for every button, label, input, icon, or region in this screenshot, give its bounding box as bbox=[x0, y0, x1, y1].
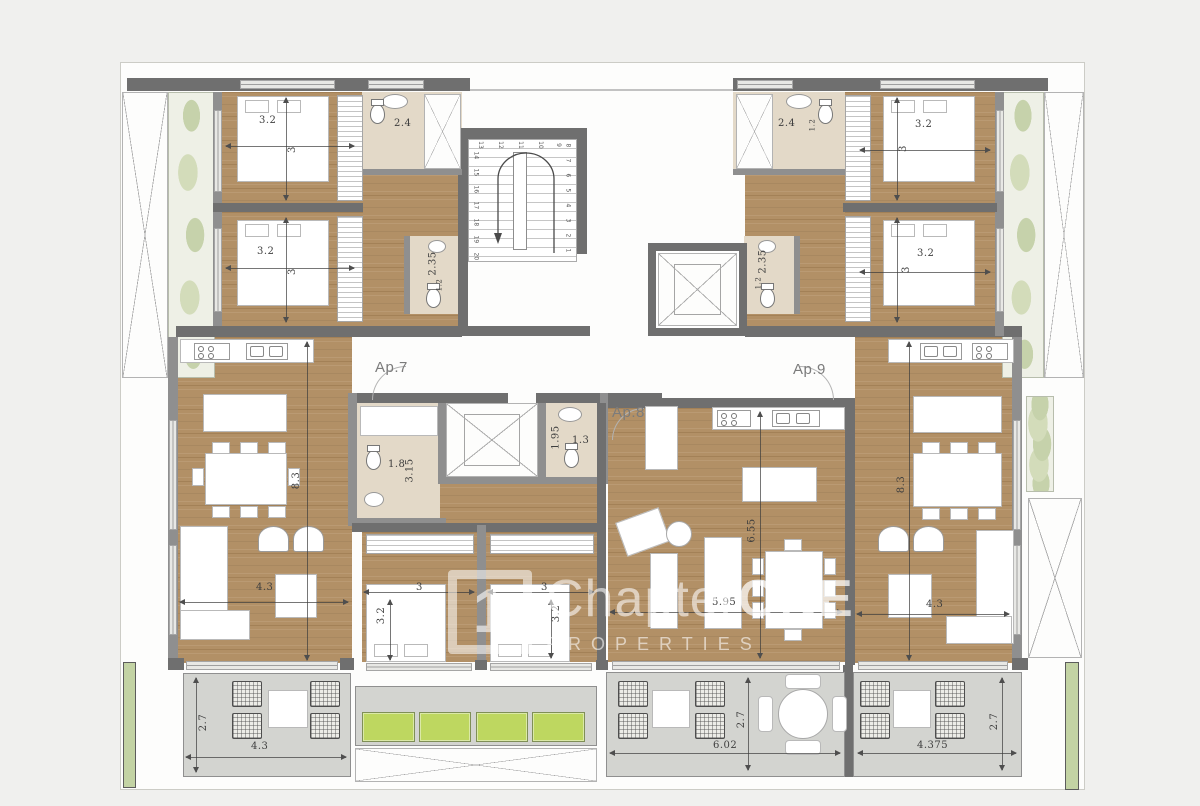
dim-label: 3.15 bbox=[405, 458, 416, 482]
sink-kitchen-ap9 bbox=[920, 343, 962, 360]
dim-label: 2.4 bbox=[394, 118, 411, 129]
dim-label: 1.3 bbox=[572, 435, 589, 446]
closet-tr1 bbox=[845, 95, 871, 201]
dining-chair bbox=[824, 580, 836, 597]
sink-bath-ap8 bbox=[558, 407, 582, 422]
pillow bbox=[277, 224, 301, 237]
dining-chair bbox=[978, 442, 996, 454]
lightwell-left bbox=[122, 92, 168, 378]
dining-table-ap8 bbox=[765, 551, 823, 629]
wicker-chair bbox=[860, 713, 890, 739]
dining-chair bbox=[950, 442, 968, 454]
terrace-table-left bbox=[268, 690, 308, 728]
dim-label: 1.8 bbox=[388, 459, 405, 470]
dim-label: 8.3 bbox=[291, 472, 302, 489]
terrace-table-center bbox=[652, 690, 690, 728]
dim-line bbox=[180, 602, 348, 603]
wall-between-tl-bedrooms bbox=[213, 203, 363, 212]
dim-label: 4.3 bbox=[256, 582, 273, 593]
sink-bath-ap7 bbox=[364, 492, 384, 507]
dim-label: 3 bbox=[287, 146, 298, 153]
dining-chair bbox=[784, 539, 802, 551]
stove-ap8 bbox=[717, 410, 751, 427]
planter-box bbox=[476, 712, 528, 742]
window-bed-tl1 bbox=[214, 110, 222, 192]
dim-label: 3.2 bbox=[917, 248, 934, 259]
lightwell-bottom-center bbox=[355, 748, 597, 782]
elevator-inner bbox=[674, 264, 721, 315]
dining-chair bbox=[824, 558, 836, 575]
wall-ap8-ap9 bbox=[845, 398, 855, 665]
window-bath-tr bbox=[737, 80, 793, 89]
coffee-table-ap9 bbox=[888, 574, 932, 618]
dim-label: 3.2 bbox=[259, 115, 276, 126]
dim-label: 2.7 bbox=[736, 711, 747, 728]
dim-line bbox=[909, 342, 910, 660]
dim-label: 1.2 bbox=[435, 279, 443, 292]
dining-chair bbox=[752, 602, 764, 619]
dining-chair bbox=[268, 442, 286, 454]
dim-label: 3.2 bbox=[551, 605, 562, 622]
pantry-ap8 bbox=[645, 406, 678, 470]
dining-chair bbox=[240, 506, 258, 518]
wall-bath-tl-south bbox=[362, 169, 462, 175]
window-ap8-south bbox=[612, 661, 840, 670]
wall-corner-3 bbox=[1012, 658, 1028, 670]
wall-corner-1 bbox=[168, 658, 184, 670]
dim-label: 3.2 bbox=[376, 607, 387, 624]
dim-label: 3 bbox=[541, 582, 548, 593]
stove-ap7 bbox=[194, 343, 230, 360]
wall-stair-east bbox=[577, 139, 587, 254]
window-tr1 bbox=[880, 80, 975, 89]
toilet-wc-tr bbox=[760, 288, 775, 308]
dining-chair bbox=[922, 442, 940, 454]
window-ap9-east1 bbox=[1013, 420, 1021, 530]
armchair-ap7 bbox=[258, 526, 289, 552]
wicker-chair bbox=[310, 681, 340, 707]
round-table-chair bbox=[832, 696, 847, 732]
window-ap7-south bbox=[186, 661, 338, 670]
apartment-label-ap8: Ap.8 bbox=[612, 404, 645, 421]
stair-direction-arrow bbox=[468, 139, 577, 262]
wicker-chair bbox=[232, 713, 262, 739]
coffee-table-ap7 bbox=[275, 574, 317, 618]
kitchen-island-ap8 bbox=[742, 467, 817, 502]
dim-label: 4.3 bbox=[926, 599, 943, 610]
wall-wc-tl-west bbox=[404, 236, 410, 314]
planter-box bbox=[419, 712, 471, 742]
stove-ap9 bbox=[972, 343, 1008, 360]
closet-tr2 bbox=[845, 216, 871, 322]
dim-line bbox=[610, 612, 842, 613]
wicker-chair bbox=[310, 713, 340, 739]
wall-corner-4 bbox=[475, 660, 487, 670]
wicker-chair bbox=[232, 681, 262, 707]
tv-bench-ap8 bbox=[650, 553, 678, 629]
pillow bbox=[245, 100, 269, 113]
terrace-table-right bbox=[893, 690, 931, 728]
pillow bbox=[923, 100, 947, 113]
sink-kitchen-ap7 bbox=[246, 343, 288, 360]
pillow bbox=[498, 644, 522, 657]
wicker-chair bbox=[935, 713, 965, 739]
dim-line bbox=[897, 218, 898, 322]
service-shaft-inner bbox=[464, 414, 520, 466]
wicker-chair bbox=[860, 681, 890, 707]
dim-label: 2.7 bbox=[198, 714, 209, 731]
wall-stair-north bbox=[455, 128, 587, 139]
planter-box bbox=[532, 712, 585, 742]
sofa-ap8 bbox=[704, 537, 742, 629]
window-beda-south bbox=[366, 663, 472, 671]
lounge-ap9 bbox=[946, 616, 1012, 644]
window-bed-tr1 bbox=[996, 110, 1004, 192]
wall-corner-5 bbox=[596, 660, 608, 670]
dim-line bbox=[307, 342, 308, 660]
toilet-bath-tr bbox=[818, 104, 833, 124]
stair-numbers-left: 14151617181920 bbox=[472, 152, 480, 260]
window-bath-tl bbox=[368, 80, 424, 89]
dim-line bbox=[760, 412, 761, 658]
pillow bbox=[404, 644, 428, 657]
wall-between-tr-bedrooms bbox=[843, 203, 997, 212]
dining-chair bbox=[824, 602, 836, 619]
dim-label: 2.35 bbox=[758, 249, 769, 273]
window-ap9-east2 bbox=[1013, 545, 1021, 635]
dining-chair bbox=[192, 468, 204, 486]
dim-line bbox=[860, 272, 990, 273]
dim-label: 3.2 bbox=[257, 246, 274, 257]
dining-chair bbox=[212, 506, 230, 518]
window-bed-tl2 bbox=[214, 228, 222, 312]
ottoman-ap8 bbox=[666, 521, 692, 547]
shower-tl bbox=[424, 94, 461, 169]
round-table-chair bbox=[785, 674, 821, 689]
dim-label: 1.95 bbox=[551, 425, 562, 449]
wicker-chair bbox=[618, 681, 648, 707]
pillow bbox=[923, 224, 947, 237]
pillow bbox=[891, 224, 915, 237]
planter-box bbox=[362, 712, 415, 742]
apartment-label-ap9: Ap.9 bbox=[793, 361, 826, 378]
wall-shaft-east bbox=[538, 403, 546, 484]
wall-wc-tr-east bbox=[794, 236, 800, 314]
armchair-ap9 bbox=[878, 526, 909, 552]
dim-line bbox=[610, 753, 840, 754]
sink-kitchen-ap8 bbox=[772, 410, 820, 427]
window-bed-tr2 bbox=[996, 228, 1004, 312]
dining-chair bbox=[950, 508, 968, 520]
shower-tr bbox=[736, 94, 773, 169]
wall-corner-2 bbox=[340, 658, 354, 670]
closet-bedroom-b bbox=[490, 534, 594, 554]
kitchen-island-ap9 bbox=[913, 396, 1002, 433]
stair-numbers-top: 910111213 bbox=[476, 141, 560, 149]
pillow bbox=[245, 224, 269, 237]
dim-line bbox=[186, 757, 346, 758]
dim-label: 3 bbox=[287, 268, 298, 275]
pillow bbox=[374, 644, 398, 657]
wall-ap7-bath-west bbox=[348, 393, 357, 525]
dim-label: 6.55 bbox=[747, 518, 758, 542]
round-table bbox=[778, 689, 828, 739]
toilet-bath-ap7 bbox=[366, 450, 381, 470]
dim-label: 1.2 bbox=[754, 277, 762, 290]
sink-bath-tl bbox=[382, 94, 408, 109]
dim-line bbox=[858, 753, 1016, 754]
planter-strip-right bbox=[1065, 662, 1079, 790]
dim-label: 2.35 bbox=[428, 251, 439, 275]
chaise-ap7 bbox=[180, 610, 250, 640]
wicker-chair bbox=[935, 681, 965, 707]
dim-label: 2.7 bbox=[989, 713, 1000, 730]
dim-label: 4.3 bbox=[251, 741, 268, 752]
toilet-bath-tl bbox=[370, 104, 385, 124]
dining-table-ap7 bbox=[205, 453, 287, 505]
dining-chair bbox=[784, 629, 802, 641]
wall-top-ledge bbox=[470, 89, 733, 91]
lightwell-right bbox=[1044, 92, 1084, 378]
dining-chair bbox=[752, 558, 764, 575]
dim-label: 6.02 bbox=[713, 740, 737, 751]
dining-chair bbox=[922, 508, 940, 520]
wall-shaft-south bbox=[438, 477, 546, 484]
tree-strip-right-mid bbox=[1026, 396, 1054, 492]
kitchen-island-ap7 bbox=[203, 394, 287, 432]
dining-chair bbox=[240, 442, 258, 454]
pillow bbox=[277, 100, 301, 113]
apartment-label-ap7: Ap.7 bbox=[375, 359, 408, 376]
dim-line bbox=[860, 150, 990, 151]
window-ap7-west2 bbox=[169, 545, 177, 635]
dim-label: 3 bbox=[416, 582, 423, 593]
toilet-bath-ap8 bbox=[564, 448, 579, 468]
floor-plan: 12345678 910111213 14151617181920 bbox=[0, 0, 1200, 806]
wall-stair-south bbox=[458, 326, 590, 336]
stair-numbers-right: 12345678 bbox=[564, 144, 572, 256]
sink-bath-tr bbox=[786, 94, 812, 109]
bathtub-ap7 bbox=[360, 406, 438, 436]
wicker-chair bbox=[695, 713, 725, 739]
lightwell-right-bottom bbox=[1028, 498, 1082, 658]
dim-line bbox=[857, 614, 1009, 615]
sofa-ap7 bbox=[180, 526, 228, 612]
wall-bath-tr-south bbox=[733, 169, 845, 175]
dim-label: 5.95 bbox=[712, 597, 736, 608]
wall-tr-block-south bbox=[745, 326, 1022, 337]
wall-tl-block-south bbox=[176, 326, 462, 337]
wall-bedb-ap8 bbox=[597, 403, 606, 665]
dining-chair bbox=[212, 442, 230, 454]
dim-label: 8.3 bbox=[896, 476, 907, 493]
dim-label: 3 bbox=[901, 266, 912, 273]
dim-label: 2.4 bbox=[778, 118, 795, 129]
wall-shaft-west bbox=[438, 403, 446, 484]
dim-label: 4.375 bbox=[917, 740, 948, 751]
closet-bedroom-a bbox=[366, 534, 474, 554]
dining-chair bbox=[752, 580, 764, 597]
dining-chair bbox=[268, 506, 286, 518]
planter-strip-left bbox=[123, 662, 136, 788]
dim-label: 3 bbox=[898, 145, 909, 152]
dim-line bbox=[748, 678, 749, 770]
dim-line bbox=[1002, 678, 1003, 770]
wall-between-bedrooms-ab bbox=[477, 525, 486, 665]
armchair-ap9 bbox=[913, 526, 944, 552]
dining-chair bbox=[978, 508, 996, 520]
wicker-chair bbox=[695, 681, 725, 707]
dining-table-ap9 bbox=[913, 453, 1002, 507]
dim-line bbox=[390, 600, 391, 660]
window-ap7-west1 bbox=[169, 420, 177, 530]
dim-label: 3.2 bbox=[915, 119, 932, 130]
window-bedb-south bbox=[490, 663, 592, 671]
armchair-ap7 bbox=[293, 526, 324, 552]
round-table-chair bbox=[758, 696, 773, 732]
window-tl1 bbox=[240, 80, 335, 89]
window-ap9-south bbox=[858, 661, 1008, 670]
dim-label: 1.2 bbox=[808, 119, 816, 132]
wicker-chair bbox=[618, 713, 648, 739]
